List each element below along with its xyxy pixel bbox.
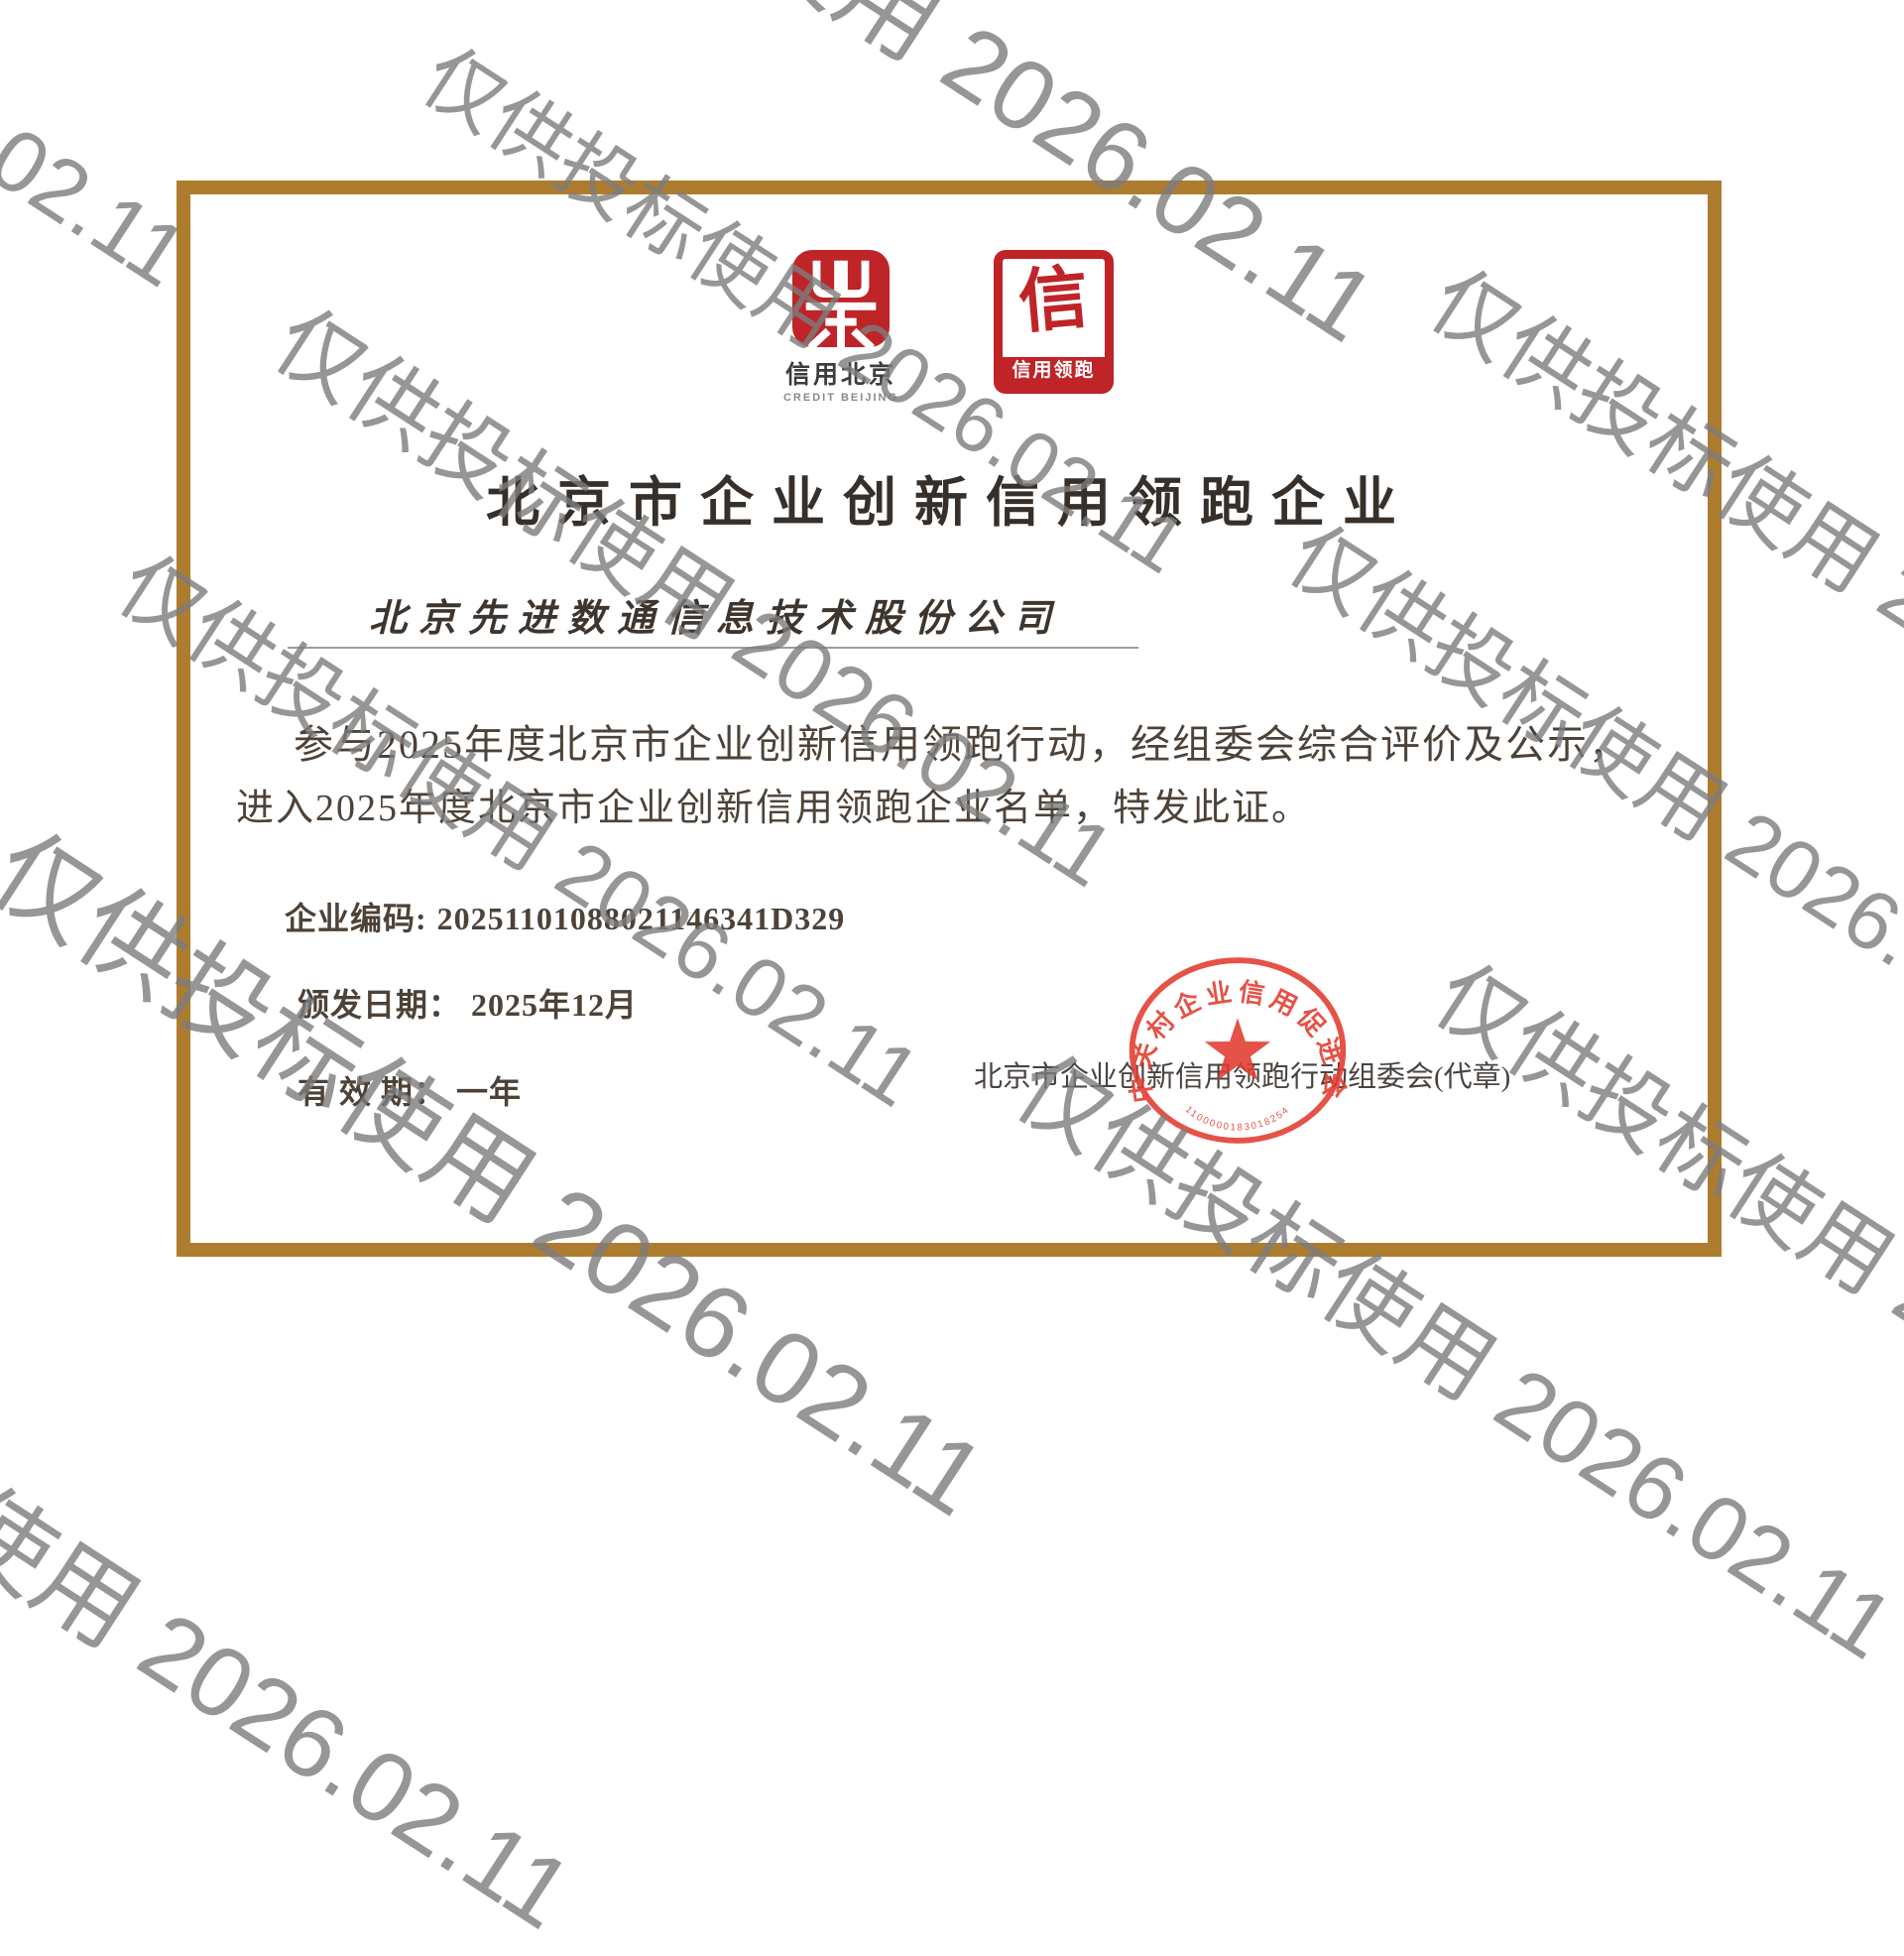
seal-star-icon: [1205, 1018, 1270, 1080]
issue-date-label: 颁发日期：: [297, 987, 461, 1023]
certificate-title: 北京市企业创新信用领跑企业: [186, 458, 1714, 537]
issue-date-row: 颁发日期：2025年12月: [297, 980, 638, 1026]
credit-leader-label: 信用领跑: [1003, 357, 1105, 385]
svg-text:1100000183018254: 1100000183018254: [1183, 1104, 1292, 1133]
company-name: 北京先进数通信息技术股份公司: [369, 587, 1063, 642]
company-underline: [288, 647, 1138, 649]
seal-serial: 1100000183018254: [1183, 1104, 1292, 1133]
official-seal: 中关村企业信用促进会 1100000183018254: [1123, 944, 1353, 1161]
issue-date-value: 2025年12月: [471, 987, 638, 1023]
enterprise-code-label: 企业编码:: [285, 901, 427, 936]
enterprise-code-value: 20251101088021146341D329: [437, 901, 846, 936]
credit-beijing-logo: 信用北京 CREDIT BEIJING: [781, 250, 900, 404]
credit-beijing-label: 信用北京: [781, 355, 900, 391]
validity-label: 有 效 期：: [297, 1074, 446, 1110]
body-line-2: 进入2025年度北京市企业创新信用领跑企业名单，特发此证。: [236, 777, 1311, 831]
validity-value: 一年: [456, 1074, 522, 1110]
credit-leader-glyph-icon: 信: [999, 255, 1108, 349]
validity-row: 有 效 期：一年: [297, 1067, 522, 1113]
credit-leader-logo: 信 信用领跑: [994, 250, 1114, 394]
body-line-1: 参与2025年度北京市企业创新信用领跑行动，经组委会综合评价及公示，: [294, 712, 1630, 770]
credit-beijing-label-en: CREDIT BEIJING: [781, 392, 900, 404]
watermark-text: 仅供投标使用 2026.02.11: [0, 1230, 605, 1956]
enterprise-code-row: 企业编码:20251101088021146341D329: [285, 894, 845, 939]
certificate-page: 信用北京 CREDIT BEIJING 信 信用领跑 北京市企业创新信用领跑企业…: [0, 0, 1904, 1430]
credit-beijing-emblem-icon: [792, 250, 890, 347]
